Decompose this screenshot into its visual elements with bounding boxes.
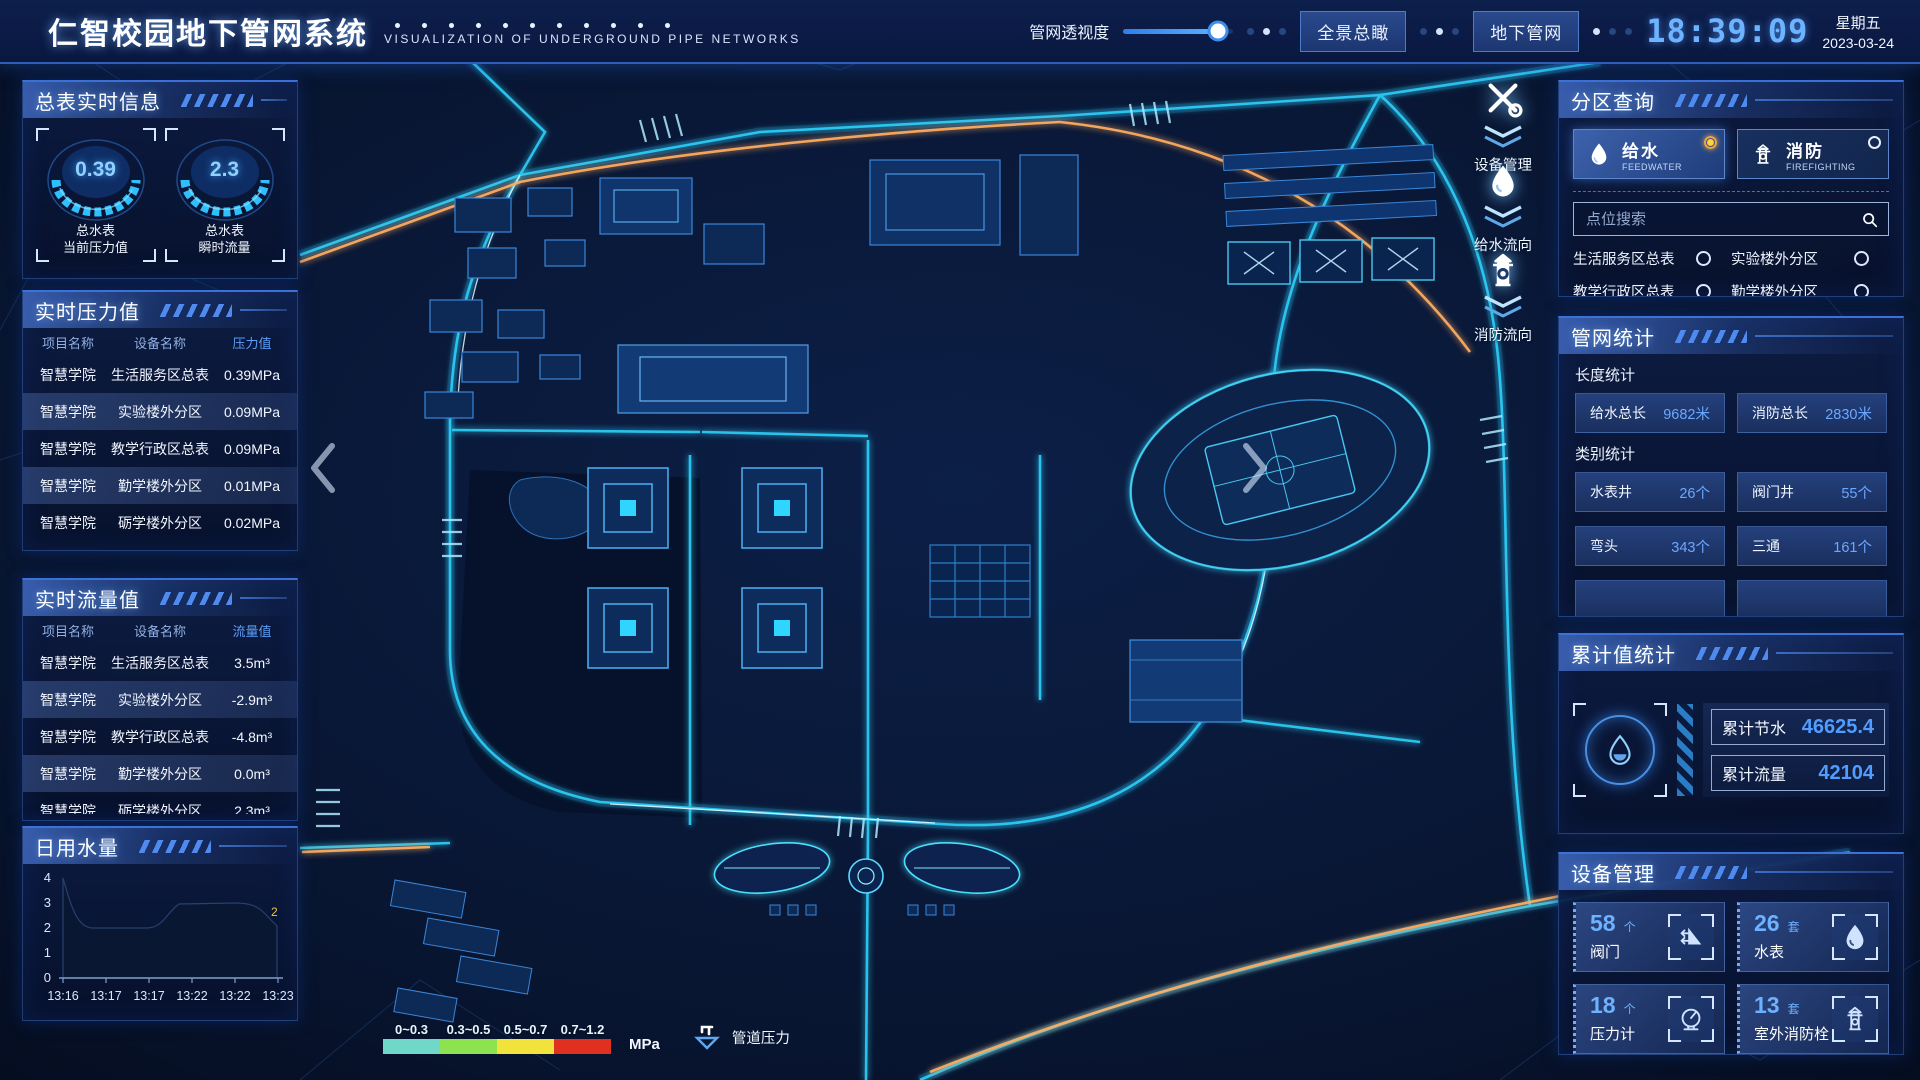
table-row: 智慧学院勤学楼外分区0.01MPa	[23, 467, 297, 504]
legend-unit: MPa	[629, 1036, 660, 1053]
tab-sublabel: FIREFIGHTING	[1786, 162, 1856, 172]
radio-selected[interactable]	[1704, 136, 1717, 149]
marker-feedwater-flow[interactable]: 给水流向	[1468, 162, 1538, 255]
legend-color-swatch	[440, 1039, 497, 1054]
tab-label: 给水	[1622, 137, 1682, 162]
chevron-down-icon	[1480, 295, 1526, 319]
marker-device-management[interactable]: 设备管理	[1468, 76, 1538, 175]
gauge-label-1: 总水表	[76, 223, 115, 238]
last-point-label: 2	[271, 905, 278, 919]
panel-title: 总表实时信息	[35, 86, 161, 115]
device-card-valve[interactable]: 58个 阀门	[1573, 902, 1725, 972]
underground-network-button[interactable]: 地下管网	[1473, 11, 1579, 52]
app-subtitle: VISUALIZATION OF UNDERGROUND PIPE NETWOR…	[384, 32, 801, 46]
svg-text:4: 4	[44, 870, 51, 885]
device-card-water-meter[interactable]: 26套 水表	[1737, 902, 1889, 972]
gauge-value: 0.39	[36, 158, 156, 182]
length-stats-label: 长度统计	[1559, 354, 1903, 385]
pipe-pressure-icon	[690, 1020, 724, 1054]
legend-color-swatch	[383, 1039, 440, 1054]
device-management-panel: 设备管理 58个 阀门 26套 水表	[1558, 852, 1904, 1055]
legend-range-label: 0.5~0.7	[504, 1022, 548, 1037]
table-row: 智慧学院勤学楼外分区0.0m³	[23, 755, 297, 792]
cumulative-value-box: 累计流量42104	[1711, 755, 1885, 791]
title-slashes-decoration	[1694, 647, 1768, 660]
legend-color-swatch	[554, 1039, 611, 1054]
cumulative-stats-panel: 累计值统计 累计节水46625.4 累计流量42104	[1558, 633, 1904, 834]
water-drop-icon	[1586, 141, 1612, 167]
dashed-divider	[1573, 191, 1889, 192]
tab-label: 消防	[1786, 137, 1856, 162]
search-icon[interactable]	[1861, 211, 1878, 228]
svg-text:13:17: 13:17	[90, 989, 121, 1003]
device-card-hydrant[interactable]: 13套 室外消防栓	[1737, 984, 1889, 1054]
table-row: 智慧学院教学行政区总表0.09MPa	[23, 430, 297, 467]
clock: 18:39:09	[1646, 12, 1808, 50]
svg-text:13:22: 13:22	[219, 989, 250, 1003]
pressure-table-panel: 实时压力值 项目名称设备名称压力值 智慧学院生活服务区总表0.39MPa 智慧学…	[22, 290, 298, 551]
svg-text:13:22: 13:22	[176, 989, 207, 1003]
panel-title: 实时流量值	[35, 584, 140, 613]
gauge-label-2: 当前压力值	[63, 240, 128, 255]
panel-title: 实时压力值	[35, 296, 140, 325]
marker-label: 消防流向	[1468, 324, 1538, 345]
stat-box: 阀门井55个	[1737, 472, 1887, 512]
title-slashes-decoration	[137, 840, 211, 853]
svg-text:13:16: 13:16	[47, 989, 78, 1003]
radio-unselected[interactable]	[1868, 136, 1881, 149]
svg-text:13:17: 13:17	[133, 989, 164, 1003]
master-meter-panel: 总表实时信息 0.39 总水表当前压力值 2.3	[22, 80, 298, 279]
water-saving-icon-frame	[1573, 703, 1667, 797]
hydrant-icon	[1750, 141, 1776, 167]
dashboard: 仁智校园地下管网系统 VISUALIZATION OF UNDERGROUND …	[0, 0, 1920, 1080]
stat-box-clipped	[1737, 580, 1887, 617]
legend-range-label: 0.7~1.2	[561, 1022, 605, 1037]
water-drop-icon	[1603, 733, 1637, 767]
area-series	[63, 878, 277, 978]
category-stats-label: 类别统计	[1559, 433, 1903, 464]
gauge-label-1: 总水表	[205, 223, 244, 238]
legend-color-swatch	[497, 1039, 554, 1054]
pressure-legend: 0~0.3 0.3~0.5 0.5~0.7 0.7~1.2 MPa 管道压力	[383, 1020, 790, 1054]
stat-box: 给水总长9682米	[1575, 393, 1725, 433]
point-ring[interactable]	[1696, 251, 1711, 266]
table-header: 项目名称设备名称流量值	[23, 616, 297, 644]
title-slashes-decoration	[1673, 94, 1747, 107]
water-drop-icon	[1484, 162, 1522, 200]
zone-point-item[interactable]: 生活服务区总表	[1573, 242, 1731, 275]
table-row: 智慧学院生活服务区总表0.39MPa	[23, 356, 297, 393]
stat-box-clipped	[1575, 580, 1725, 617]
zone-query-panel: 分区查询 给水 FEEDWATER 消防 FIREFIGHTING	[1558, 80, 1904, 297]
hydrant-icon	[1483, 250, 1523, 290]
svg-text:13:23: 13:23	[262, 989, 293, 1003]
table-row: 智慧学院生活服务区总表3.5m³	[23, 644, 297, 681]
gauge-label-2: 瞬时流量	[198, 240, 250, 255]
table-row: 智慧学院实验楼外分区0.09MPa	[23, 393, 297, 430]
flow-gauge: 2.3 总水表瞬时流量	[165, 128, 285, 262]
daily-water-panel: 日用水量 4 3 2 1 0 13:16 13:17 13:17 13:22	[22, 826, 298, 1021]
table-row: 智慧学院砺学楼外分区2.3m³	[23, 792, 297, 814]
table-row: 智慧学院实验楼外分区-2.9m³	[23, 681, 297, 718]
tab-sublabel: FEEDWATER	[1622, 162, 1682, 172]
marker-fire-flow[interactable]: 消防流向	[1468, 250, 1538, 345]
svg-text:2: 2	[44, 920, 51, 935]
slider-thumb[interactable]	[1207, 21, 1228, 42]
stat-box: 弯头343个	[1575, 526, 1725, 566]
table-row: 智慧学院教学行政区总表-4.8m³	[23, 718, 297, 755]
dots-decoration	[1593, 28, 1632, 35]
legend-pipe-label: 管道压力	[732, 1027, 790, 1048]
app-title: 仁智校园地下管网系统	[48, 9, 368, 53]
legend-range-label: 0~0.3	[395, 1022, 428, 1037]
title-slashes-decoration	[1673, 330, 1747, 343]
pan-left-arrow[interactable]	[306, 440, 340, 496]
title-slashes-decoration	[179, 94, 253, 107]
pressure-gauge: 0.39 总水表当前压力值	[36, 128, 156, 262]
header-bar: 仁智校园地下管网系统 VISUALIZATION OF UNDERGROUND …	[0, 0, 1920, 64]
panel-title: 设备管理	[1571, 858, 1655, 887]
panel-title: 累计值统计	[1571, 639, 1676, 668]
point-ring[interactable]	[1854, 251, 1869, 266]
point-ring[interactable]	[1696, 284, 1711, 297]
cumulative-value-box: 累计节水46625.4	[1711, 709, 1885, 745]
tab-feedwater[interactable]: 给水 FEEDWATER	[1573, 129, 1725, 179]
chevron-down-icon	[1480, 125, 1526, 149]
title-slashes-decoration	[158, 592, 232, 605]
zone-point-item[interactable]: 实验楼外分区	[1731, 242, 1889, 275]
title-slashes-decoration	[1673, 866, 1747, 879]
transparency-label: 管网透视度	[1029, 19, 1109, 43]
panel-title: 日用水量	[35, 832, 119, 861]
stat-box: 消防总长2830米	[1737, 393, 1887, 433]
panorama-overview-button[interactable]: 全景总瞰	[1300, 11, 1406, 52]
transparency-slider[interactable]	[1123, 29, 1233, 34]
stat-box: 三通161个	[1737, 526, 1887, 566]
network-stats-panel: 管网统计 长度统计 给水总长9682米 消防总长2830米 类别统计 水表井26…	[1558, 316, 1904, 617]
hazard-stripe-decoration	[1677, 704, 1693, 796]
search-box[interactable]	[1573, 202, 1889, 236]
svg-text:0: 0	[44, 970, 51, 985]
dots-decoration	[1247, 28, 1286, 35]
flow-table-panel: 实时流量值 项目名称设备名称流量值 智慧学院生活服务区总表3.5m³ 智慧学院实…	[22, 578, 298, 821]
title-slashes-decoration	[158, 304, 232, 317]
panel-title: 管网统计	[1571, 322, 1655, 351]
weekday: 星期五	[1836, 12, 1881, 33]
search-input[interactable]	[1584, 210, 1853, 229]
device-card-pressure-meter[interactable]: 18个 压力计	[1573, 984, 1725, 1054]
table-row: 智慧学院砺学楼外分区0.02MPa	[23, 504, 297, 541]
gauge-value: 2.3	[165, 158, 285, 182]
date: 2023-03-24	[1822, 35, 1894, 51]
point-ring[interactable]	[1854, 284, 1869, 297]
daily-water-chart: 4 3 2 1 0 13:16 13:17 13:17 13:22 13:22 …	[25, 868, 293, 1016]
tools-icon	[1481, 76, 1525, 120]
dots-decoration	[1420, 28, 1459, 35]
tab-firefighting[interactable]: 消防 FIREFIGHTING	[1737, 129, 1889, 179]
pan-right-arrow[interactable]	[1238, 440, 1272, 496]
table-header: 项目名称设备名称压力值	[23, 328, 297, 356]
zone-point-item[interactable]: 勤学楼外分区	[1731, 275, 1889, 297]
legend-range-label: 0.3~0.5	[447, 1022, 491, 1037]
svg-text:3: 3	[44, 895, 51, 910]
stat-box: 水表井26个	[1575, 472, 1725, 512]
zone-point-item[interactable]: 教学行政区总表	[1573, 275, 1731, 297]
title-dots-decoration	[384, 22, 684, 29]
panel-title: 分区查询	[1571, 86, 1655, 115]
svg-text:1: 1	[44, 945, 51, 960]
chevron-down-icon	[1480, 205, 1526, 229]
